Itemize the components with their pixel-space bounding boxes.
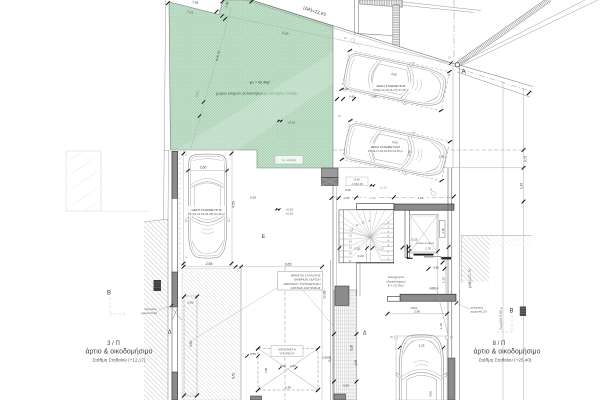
svg-text:3,90: 3,90	[189, 341, 193, 347]
svg-text:4,50: 4,50	[429, 391, 433, 397]
svg-text:0,20: 0,20	[358, 254, 364, 258]
svg-text:1,80: 1,80	[264, 367, 268, 373]
svg-text:2,00: 2,00	[441, 228, 445, 234]
svg-text:2,58: 2,58	[206, 262, 213, 266]
svg-text:ΑΜΕΑ: ΑΜΕΑ	[429, 287, 439, 291]
svg-text:0,40: 0,40	[280, 364, 286, 368]
svg-text:Λωρίδα 9,00 μ: Λωρίδα 9,00 μ	[499, 307, 503, 330]
svg-text:10,43: 10,43	[323, 290, 327, 299]
svg-text:9,51: 9,51	[232, 372, 236, 379]
svg-text:8 / Π: 8 / Π	[493, 341, 506, 347]
svg-text:0,20: 0,20	[250, 196, 256, 200]
svg-text:2,25: 2,25	[419, 343, 425, 347]
svg-text:3,65: 3,65	[285, 263, 292, 267]
svg-text:0,80: 0,80	[433, 265, 439, 269]
svg-text:Ε: Ε	[262, 234, 266, 240]
svg-text:+0,15: +0,15	[288, 121, 296, 125]
svg-text:1,45: 1,45	[519, 183, 523, 189]
svg-text:0,73: 0,73	[524, 156, 528, 162]
svg-text:0,46: 0,46	[354, 178, 360, 182]
svg-text:-1,66/1,00: -1,66/1,00	[351, 182, 363, 186]
svg-text:0,60: 0,60	[349, 95, 355, 99]
svg-text:χώρος ελιγμών αυτοκινήτων με δ: χώρος ελιγμών αυτοκινήτων με διάτρητες π…	[216, 92, 299, 96]
svg-text:0,60: 0,60	[344, 196, 350, 200]
svg-text:ΘΕΣΗ ΣΤΑΘΜΕΥΣΗΣ: ΘΕΣΗ ΣΤΑΘΜΕΥΣΗΣ	[376, 84, 405, 88]
svg-text:4,95: 4,95	[354, 360, 358, 366]
svg-text:αρμός=0,20: αρμός=0,20	[141, 311, 157, 315]
svg-text:(ΔΒ)=17,70: (ΔΒ)=17,70	[468, 269, 472, 288]
svg-text:1,50: 1,50	[371, 95, 377, 99]
svg-text:3 / Π: 3 / Π	[107, 341, 120, 347]
svg-text:2,50: 2,50	[418, 196, 424, 200]
svg-text:ΑΝΤΛΙΑΣ ΑΝΥΨΩΣΗΣ: ΑΝΤΛΙΑΣ ΑΝΥΨΩΣΗΣ	[291, 286, 321, 290]
svg-text:1,70: 1,70	[425, 247, 431, 251]
svg-text:Στάθμη Στηθαίου (+25,40): Στάθμη Στηθαίου (+25,40)	[479, 357, 532, 363]
svg-text:Β: Β	[510, 309, 514, 315]
svg-text:1,20: 1,20	[378, 246, 384, 250]
svg-text:+0,15: +0,15	[380, 185, 388, 189]
svg-text:12: 12	[350, 228, 354, 232]
svg-text:ΑΜΕΑ: ΑΜΕΑ	[410, 306, 418, 310]
svg-text:0,20: 0,20	[345, 188, 351, 192]
svg-text:0,60: 0,60	[188, 301, 194, 305]
svg-text:Στάθμη Στηθαίου (+12,17): Στάθμη Στηθαίου (+12,17)	[93, 357, 146, 363]
svg-text:1,10: 1,10	[442, 277, 446, 283]
svg-text:Ρ5(16-17-18-19-20)=11,25 μ²: Ρ5(16-17-18-19-20)=11,25 μ²	[368, 149, 403, 153]
svg-text:ΥΠΟΓΕΙΟΥ: ΥΠΟΓΕΙΟΥ	[279, 352, 294, 356]
svg-text:άρτιο & οικοδομήσιμο: άρτιο & οικοδομήσιμο	[474, 348, 541, 356]
svg-text:1,10: 1,10	[439, 323, 443, 329]
svg-text:άρτιο & οικοδομήσιμο: άρτιο & οικοδομήσιμο	[86, 348, 153, 356]
svg-text:1,20: 1,20	[354, 246, 360, 250]
svg-text:3,90: 3,90	[328, 356, 332, 362]
svg-text:(εν. κάτοψη): (εν. κάτοψη)	[282, 158, 296, 162]
svg-text:Ε = 20,79 μ²: Ε = 20,79 μ²	[388, 284, 405, 288]
svg-text:Ρ4(13-14-15-16-17)=17,25 μ²: Ρ4(13-14-15-16-17)=17,25 μ²	[373, 88, 408, 92]
svg-text:αρμός=0,20: αρμός=0,20	[471, 310, 487, 314]
svg-text:+0,10: +0,10	[286, 212, 294, 216]
svg-text:1,30: 1,30	[370, 196, 376, 200]
svg-text:Β: Β	[107, 291, 111, 297]
svg-text:0,55: 0,55	[250, 352, 256, 356]
svg-text:2,50: 2,50	[285, 386, 291, 390]
svg-text:4,50: 4,50	[232, 201, 236, 208]
svg-text:0,60: 0,60	[343, 384, 349, 388]
svg-text:ΘΕΣΗ ΣΤΑΘΜΕΥΣΗΣ: ΘΕΣΗ ΣΤΑΘΜΕΥΣΗΣ	[371, 145, 400, 149]
svg-text:0,40: 0,40	[290, 364, 296, 368]
svg-text:Ρ6 (21-22-23-24-25)=11,25 μ²: Ρ6 (21-22-23-24-25)=11,25 μ²	[188, 212, 225, 216]
svg-text:0,20: 0,20	[343, 87, 349, 91]
svg-text:φ1 = 42,49μ²: φ1 = 42,49μ²	[250, 81, 271, 85]
svg-text:2,60: 2,60	[200, 166, 207, 170]
svg-text:0,90: 0,90	[322, 356, 328, 360]
svg-text:1,30: 1,30	[439, 155, 445, 159]
svg-text:ανελκυστήρας: ανελκυστήρας	[416, 241, 435, 245]
svg-text:3,90: 3,90	[350, 345, 354, 351]
